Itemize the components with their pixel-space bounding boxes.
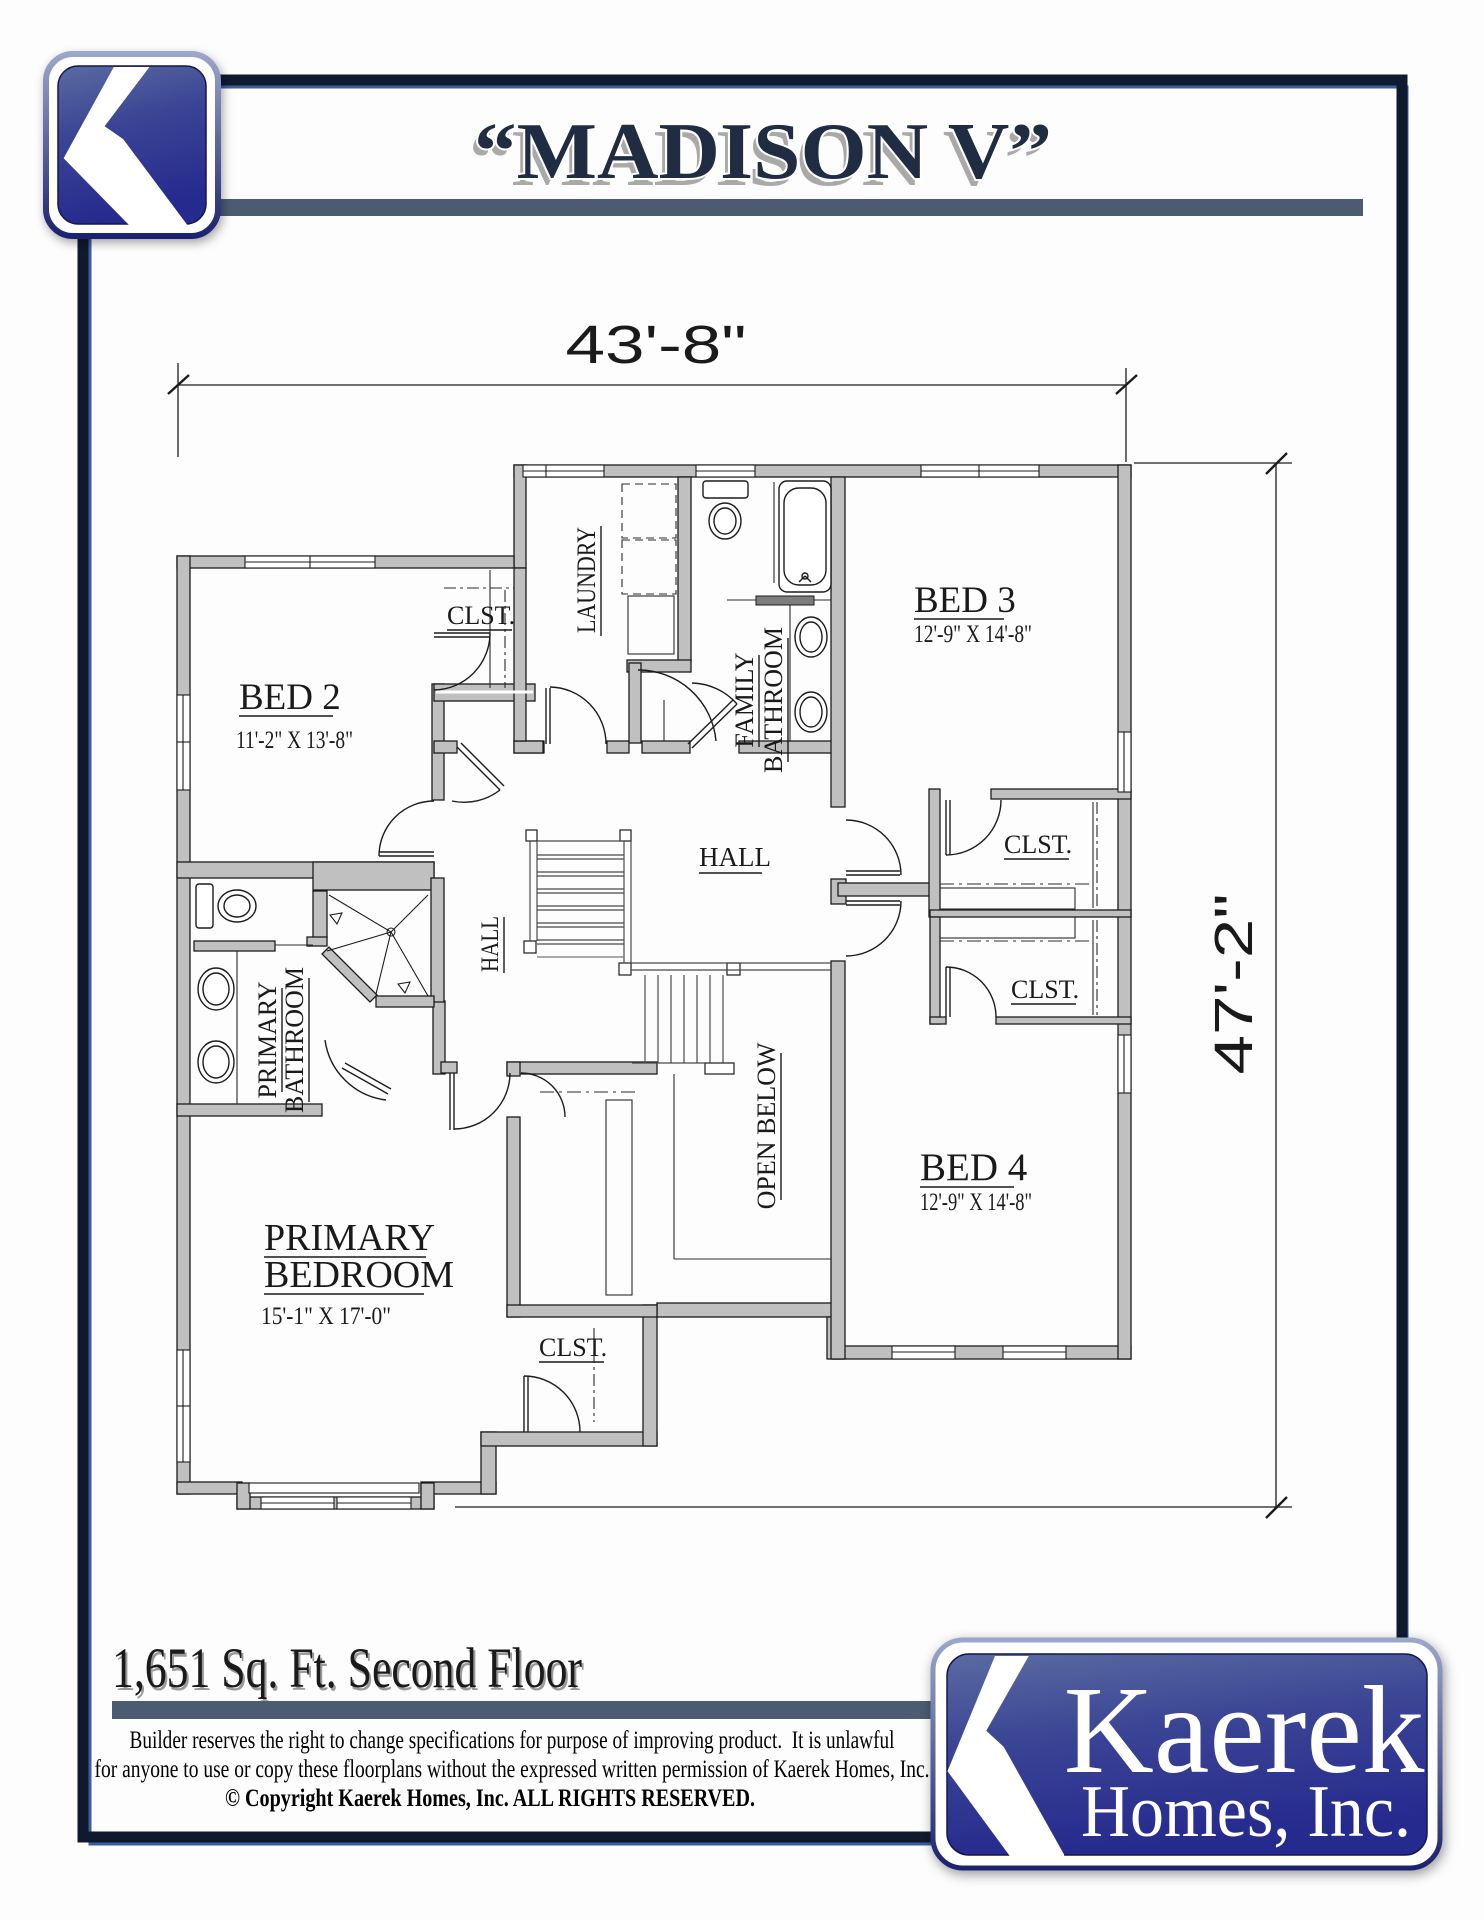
- svg-text:CLST.: CLST.: [1004, 830, 1072, 859]
- svg-text:“MADISON V”: “MADISON V”: [474, 106, 1052, 196]
- svg-text:47'-2": 47'-2": [1204, 894, 1264, 1075]
- svg-text:CLST.: CLST.: [447, 601, 515, 630]
- svg-text:12'-9" X 14'-8": 12'-9" X 14'-8": [914, 621, 1032, 648]
- svg-text:© Copyright Kaerek Homes, Inc.: © Copyright Kaerek Homes, Inc. ALL RIGHT…: [225, 1785, 755, 1812]
- svg-text:1,651 Sq. Ft. Second Floor: 1,651 Sq. Ft. Second Floor: [112, 1637, 582, 1700]
- svg-text:for anyone to use or copy thes: for anyone to use or copy these floorpla…: [95, 1756, 930, 1783]
- svg-text:Homes, Inc.: Homes, Inc.: [1081, 1771, 1411, 1853]
- svg-text:BATHROOM: BATHROOM: [280, 967, 309, 1113]
- svg-text:FAMILY: FAMILY: [730, 652, 759, 747]
- svg-text:11'-2" X 13'-8": 11'-2" X 13'-8": [236, 727, 353, 754]
- svg-text:BEDROOM: BEDROOM: [264, 1254, 454, 1296]
- svg-text:BED 3: BED 3: [914, 580, 1016, 621]
- svg-text:Builder reserves the right to: Builder reserves the right to change spe…: [130, 1727, 895, 1754]
- svg-text:15'-1" X 17'-0": 15'-1" X 17'-0": [261, 1303, 391, 1330]
- svg-text:OPEN BELOW: OPEN BELOW: [752, 1042, 781, 1209]
- svg-text:HALL: HALL: [699, 842, 771, 872]
- svg-text:43'-8": 43'-8": [566, 315, 747, 375]
- svg-text:BATHROOM: BATHROOM: [759, 627, 788, 773]
- svg-text:HALL: HALL: [477, 916, 504, 972]
- svg-text:PRIMARY: PRIMARY: [253, 981, 282, 1098]
- svg-text:CLST.: CLST.: [1011, 975, 1079, 1004]
- svg-text:LAUNDRY: LAUNDRY: [572, 527, 601, 633]
- svg-text:BED 4: BED 4: [920, 1146, 1027, 1189]
- svg-text:12'-9" X 14'-8": 12'-9" X 14'-8": [920, 1189, 1032, 1216]
- svg-text:CLST.: CLST.: [539, 1333, 607, 1362]
- svg-text:PRIMARY: PRIMARY: [264, 1217, 435, 1259]
- svg-text:BED 2: BED 2: [239, 677, 341, 718]
